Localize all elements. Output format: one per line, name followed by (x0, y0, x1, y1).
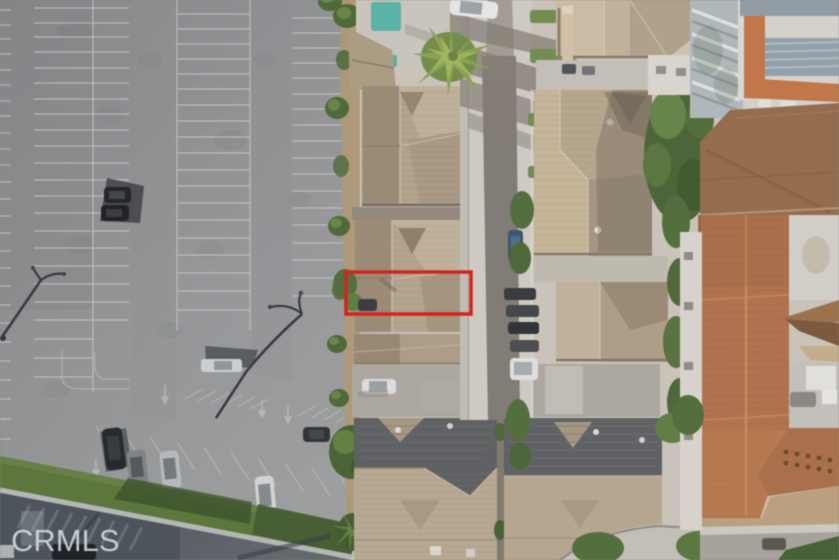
svg-text:CRMLS: CRMLS (11, 523, 120, 558)
